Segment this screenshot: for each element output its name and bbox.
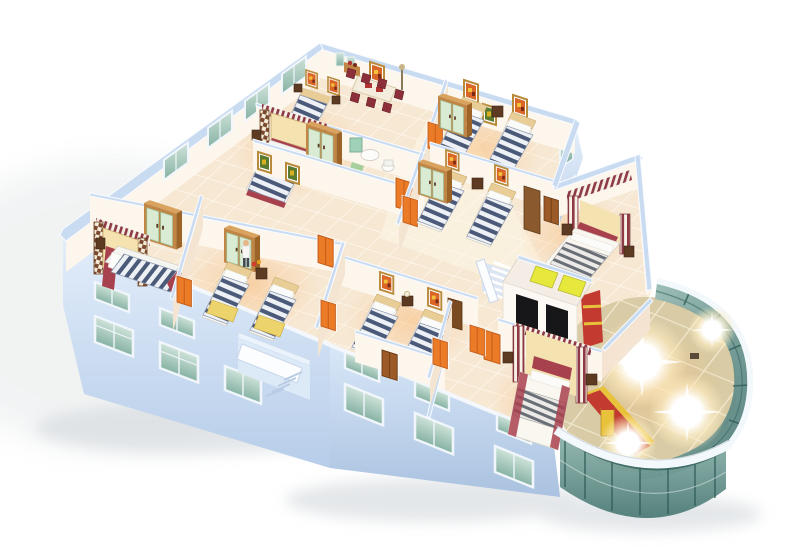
tall-cabinet bbox=[524, 186, 540, 234]
poster bbox=[428, 288, 441, 310]
poster bbox=[380, 272, 393, 294]
canopy-column bbox=[576, 347, 587, 403]
sink bbox=[361, 150, 379, 161]
nightstand bbox=[256, 268, 267, 279]
orange-door bbox=[402, 195, 419, 228]
poster bbox=[328, 77, 339, 95]
lamp-table bbox=[402, 296, 413, 306]
nightstand bbox=[503, 352, 513, 363]
nightstand bbox=[294, 84, 302, 92]
nightstand bbox=[492, 106, 503, 117]
brown-door bbox=[543, 195, 560, 226]
brown-door bbox=[381, 349, 399, 382]
orange-door bbox=[176, 275, 193, 308]
bathroom-panel bbox=[350, 138, 362, 152]
nightstand bbox=[586, 374, 597, 385]
floorplan-canvas bbox=[0, 0, 800, 550]
nightstand bbox=[472, 178, 483, 189]
nightstand bbox=[96, 238, 105, 249]
floorplan-rendering bbox=[0, 0, 800, 550]
nightstand bbox=[624, 246, 634, 257]
art-frame bbox=[286, 163, 299, 184]
orange-door bbox=[317, 234, 335, 269]
orange-door bbox=[320, 299, 337, 332]
nightstand bbox=[252, 130, 261, 140]
poster bbox=[495, 165, 508, 186]
poster bbox=[306, 70, 317, 88]
nightstand bbox=[332, 96, 340, 104]
orange-door bbox=[469, 324, 486, 357]
art-frame bbox=[258, 152, 271, 173]
nightstand bbox=[562, 224, 572, 235]
atrium-floor-object bbox=[690, 353, 699, 359]
dining-window bbox=[336, 53, 344, 66]
table-lamp bbox=[404, 291, 409, 296]
orange-door bbox=[432, 337, 449, 370]
